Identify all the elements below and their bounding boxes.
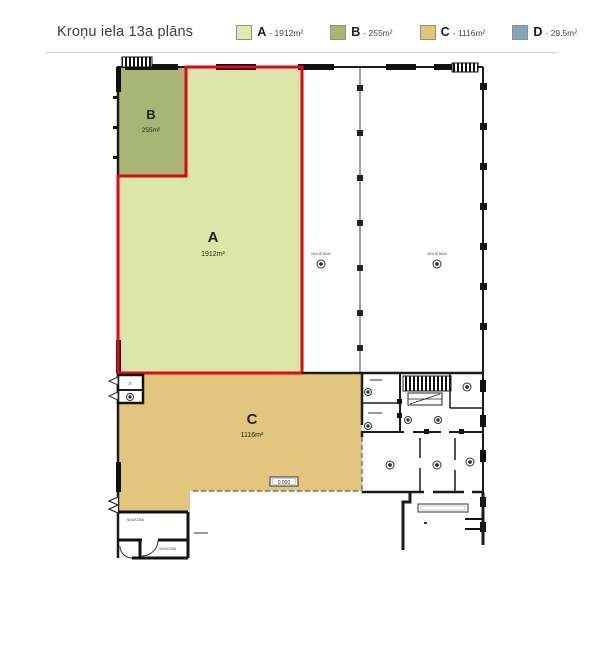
area-c-size: 1116m² [241, 432, 264, 439]
area-a-letter: A [208, 229, 219, 246]
ramp-icon [418, 504, 468, 512]
floor-drain-icon [435, 417, 442, 424]
hall-left-label: NOLIKTAVA [311, 252, 331, 256]
elevation-label: 0.000 [278, 480, 291, 486]
br-room-left-wall [403, 492, 410, 550]
door-swing-icon [109, 392, 118, 400]
room-label-smudge [370, 379, 382, 381]
room-bl-upper-label: NOLIKTAVA [127, 518, 145, 522]
door-arc-icon [120, 546, 132, 558]
page: Kroņu iela 13a plāns A - 1912m² B - 255m… [0, 0, 601, 670]
wall-break-icon [109, 497, 118, 513]
stairs-icon [122, 57, 152, 67]
floor-mark [424, 522, 427, 524]
stair-detail-icon [408, 393, 442, 405]
room-bl-lower-label: NOLIKTAVA [159, 547, 177, 551]
area-b-letter: B [146, 107, 155, 122]
room-label-smudge [194, 532, 208, 534]
door-swing-icon [109, 377, 118, 385]
floor-drain-icon [386, 461, 394, 469]
floor-plan: A 1912m² B 255m² C 1116m² NOLIKTAVA NOLI… [0, 0, 601, 670]
area-b-size: 255m² [142, 127, 161, 134]
area-c-letter: C [247, 411, 258, 428]
hall-right-label: NOLIKTAVA [427, 252, 447, 256]
area-a-size: 1912m² [201, 251, 225, 258]
dock-hatch-icon [452, 63, 478, 72]
floor-drain-icon [433, 461, 441, 469]
floor-drain-icon [317, 260, 325, 268]
room-label-smudge [368, 412, 382, 414]
door-arc-icon [142, 540, 158, 556]
floor-drain-icon [365, 389, 372, 396]
floor-drain-icon [463, 383, 471, 391]
floor-drain-icon [405, 417, 412, 424]
floor-drain-icon [466, 458, 474, 466]
floor-drain-icon [433, 260, 441, 268]
stairs-icon [403, 376, 451, 391]
floor-drain-icon [365, 423, 372, 430]
small-room-label: 2F [128, 382, 132, 386]
